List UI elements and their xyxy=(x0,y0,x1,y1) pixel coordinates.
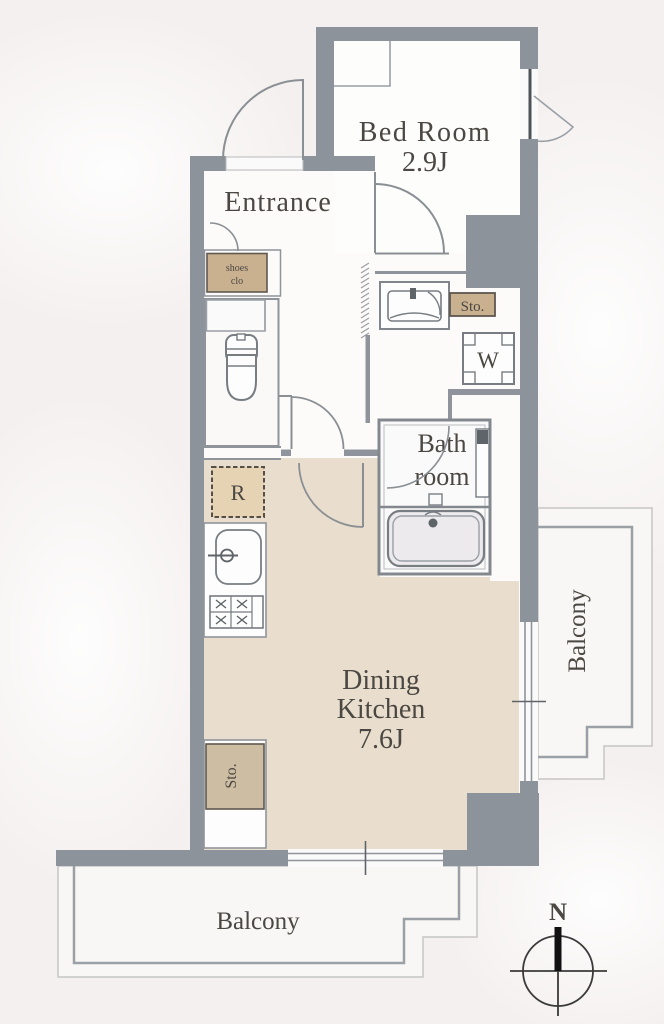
svg-text:R: R xyxy=(231,480,246,505)
svg-text:W: W xyxy=(477,348,499,373)
svg-text:7.6J: 7.6J xyxy=(358,724,404,755)
svg-text:2.9J: 2.9J xyxy=(402,147,448,178)
svg-text:clo: clo xyxy=(231,276,243,287)
svg-text:shoes: shoes xyxy=(226,263,248,274)
svg-text:Entrance: Entrance xyxy=(224,187,332,218)
svg-text:Bed Room: Bed Room xyxy=(359,117,492,148)
svg-text:Balcony: Balcony xyxy=(216,908,300,935)
svg-text:Kitchen: Kitchen xyxy=(337,694,426,725)
svg-text:Dining: Dining xyxy=(342,665,420,696)
svg-text:Sto.: Sto. xyxy=(223,763,240,788)
svg-text:Sto.: Sto. xyxy=(461,299,485,315)
svg-text:N: N xyxy=(549,899,567,926)
svg-text:Balcony: Balcony xyxy=(564,589,591,673)
